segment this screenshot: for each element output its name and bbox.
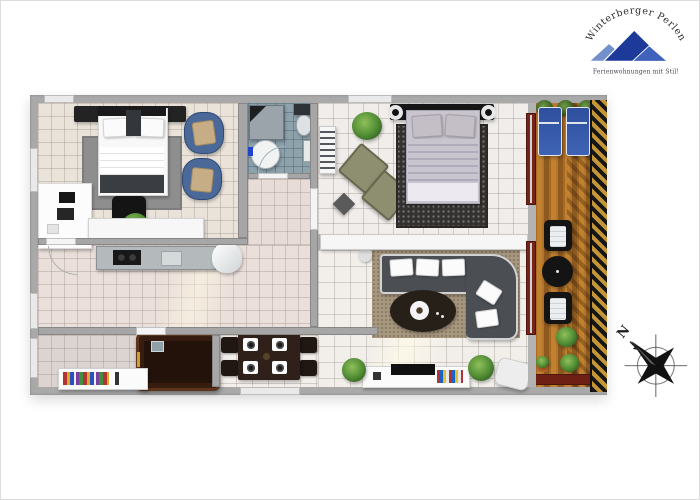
bed-foot-fold [408, 183, 478, 201]
bed-runner [126, 110, 141, 136]
bedroom-door [46, 238, 76, 245]
balcony-railing [590, 100, 607, 392]
room-hallway [248, 179, 310, 245]
dining-chair [299, 360, 317, 376]
coffee-table [390, 290, 456, 332]
room-divider-sideboard [320, 234, 528, 250]
sauna-vent [151, 341, 164, 352]
place-setting [272, 361, 287, 374]
plant [468, 355, 494, 381]
armchair-blue [184, 112, 224, 154]
laptop [59, 192, 75, 203]
balcony-ledge [535, 374, 591, 385]
dining-chair [221, 360, 239, 376]
stove [113, 250, 141, 265]
door-glass [530, 243, 532, 333]
hall-door [310, 188, 318, 230]
door-glass [530, 115, 532, 203]
floor-plan-image: Winterberger Perlen Ferienwohnungen mit … [0, 0, 700, 500]
tv [391, 364, 435, 375]
window [30, 148, 38, 192]
place-setting [243, 338, 258, 351]
shower [249, 105, 284, 140]
shower-corner [250, 106, 266, 122]
balcony-chair [544, 292, 572, 324]
balcony-chair [544, 220, 572, 251]
sliding-door [526, 113, 536, 205]
decor-item [373, 372, 381, 380]
plant [536, 356, 549, 368]
decor-dot [436, 312, 439, 315]
desk-pad [47, 224, 59, 234]
sofa-pillow [442, 259, 466, 277]
window [240, 387, 300, 395]
wall [212, 335, 220, 387]
speaker [481, 105, 496, 120]
bed-2 [406, 110, 480, 204]
soap-dispenser [248, 147, 253, 156]
dining-table [238, 334, 300, 380]
plant [560, 354, 579, 372]
window [348, 95, 392, 103]
kitchen-sink [161, 251, 182, 266]
plant [352, 112, 382, 140]
balcony-table [542, 256, 573, 287]
chair-cushion [550, 226, 566, 247]
armchair-cushion [190, 167, 214, 193]
plant [342, 358, 366, 382]
bed-duvet [408, 139, 478, 183]
sun-lounger [566, 107, 590, 156]
kitchen-counter [96, 246, 216, 270]
wall [38, 327, 378, 335]
sofa-pillow [416, 258, 440, 276]
bookshelf [58, 368, 148, 390]
lounger-bar [567, 122, 587, 124]
wardrobe [88, 218, 204, 240]
table-dot [556, 270, 559, 273]
entrance-door [30, 338, 38, 378]
speaker [388, 105, 403, 120]
bathroom-door [258, 173, 288, 179]
sofa-pillow [475, 309, 499, 329]
plant [556, 327, 577, 347]
floorplan [0, 0, 700, 500]
dining-chair [299, 337, 317, 353]
shelf-radiator [319, 126, 336, 174]
armchair-cushion [191, 120, 216, 147]
place-setting [272, 338, 287, 351]
bed-pillow [444, 114, 475, 138]
sofa-pillow [389, 258, 413, 277]
decor-dot [441, 315, 444, 318]
sun-lounger [538, 107, 562, 156]
sauna-door-handle [137, 352, 140, 367]
books [437, 370, 463, 383]
window [44, 95, 74, 103]
decor-bowl [410, 301, 429, 320]
lounger-bar [539, 122, 559, 124]
window [30, 293, 38, 329]
extractor-column [212, 243, 242, 273]
place-setting [243, 361, 258, 374]
tv-sideboard [362, 366, 470, 388]
centerpiece [263, 353, 270, 360]
dining-chair [221, 337, 239, 353]
books [63, 372, 109, 385]
book [115, 372, 119, 385]
armchair-blue [182, 158, 222, 200]
bed-duvet [100, 147, 164, 175]
bed-foot-platform [100, 175, 164, 193]
monitor [57, 208, 74, 220]
wall [238, 103, 248, 238]
bed-1 [98, 108, 168, 196]
sliding-door [526, 241, 536, 335]
potted-plant [536, 356, 549, 372]
bed-pillow [411, 114, 442, 138]
sauna [136, 333, 220, 391]
floor-lamp [358, 248, 372, 262]
sauna-room-door [136, 327, 166, 335]
chair-cushion [550, 298, 566, 320]
